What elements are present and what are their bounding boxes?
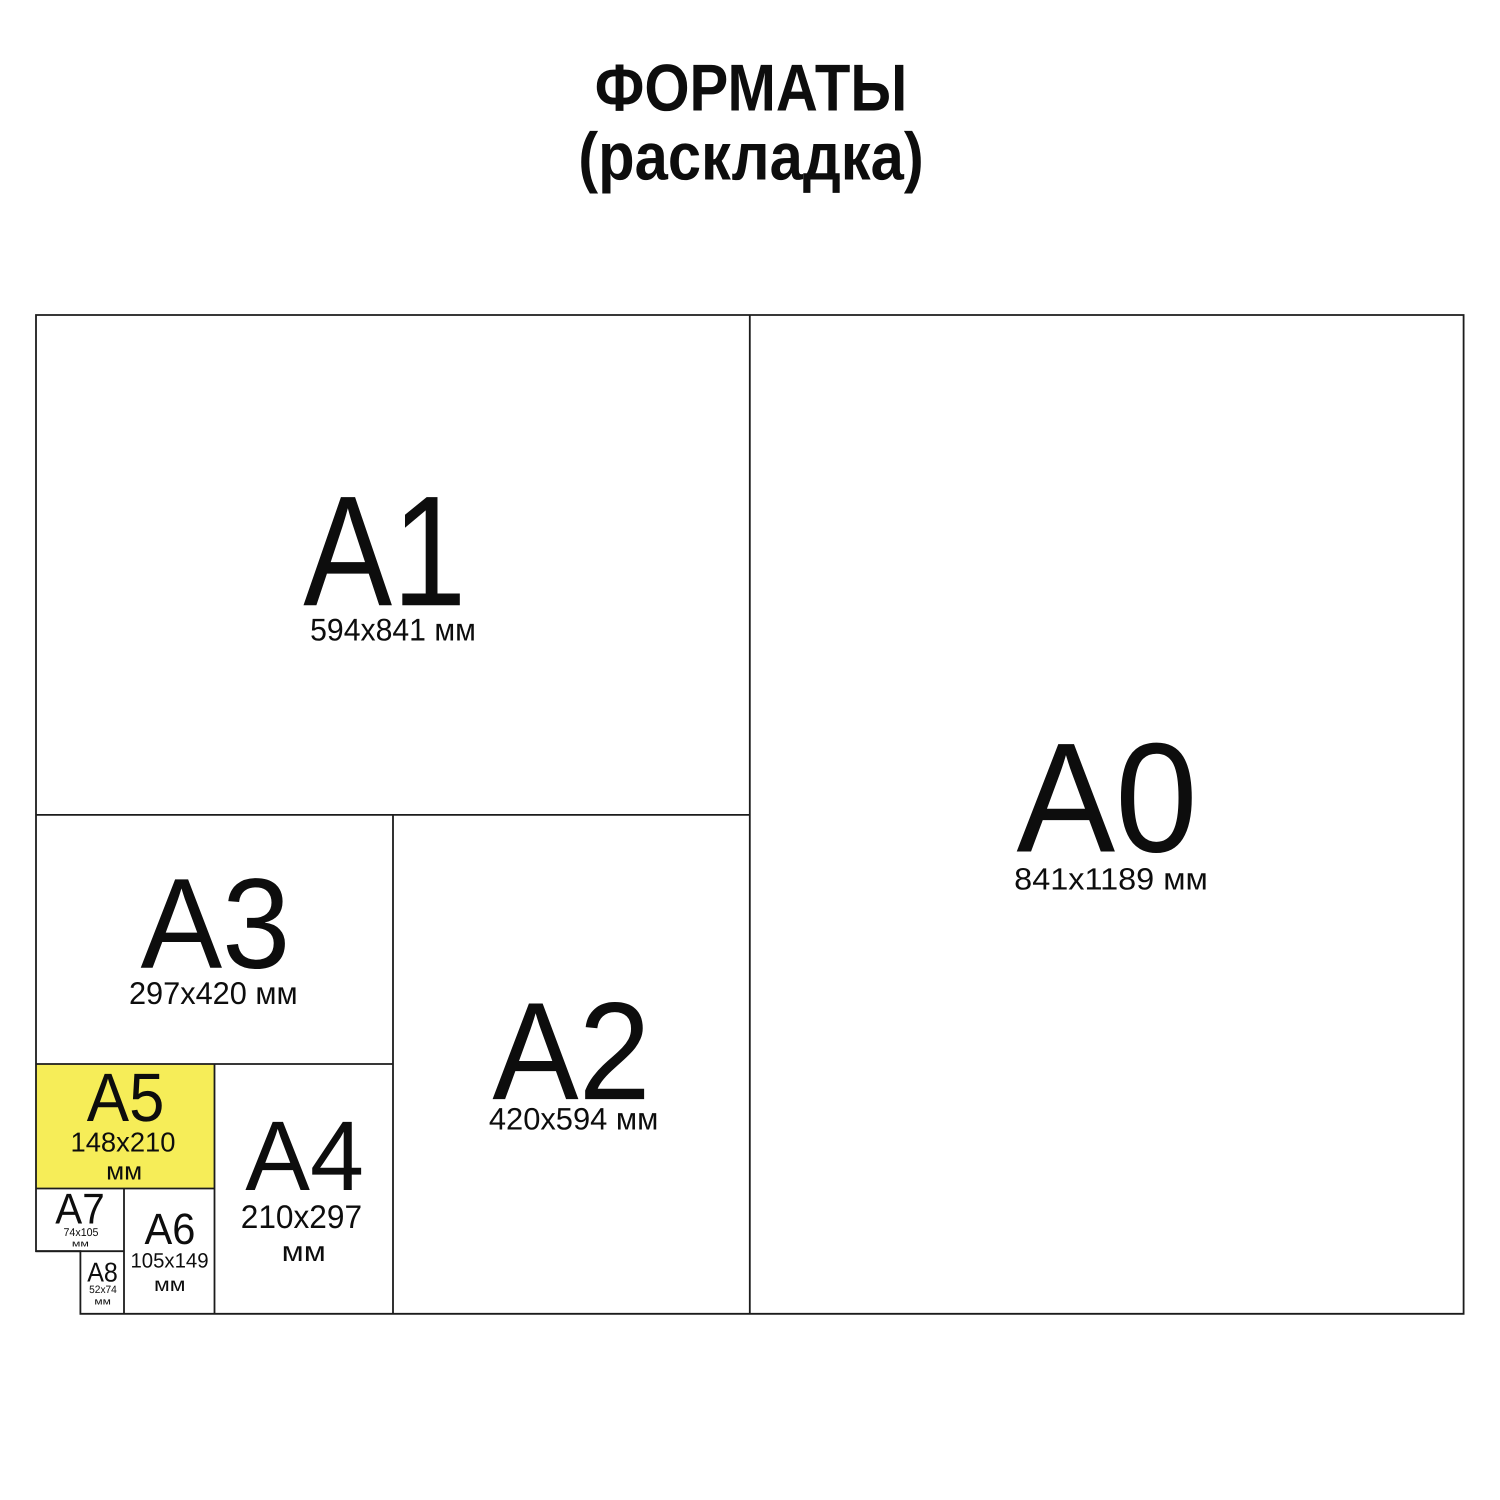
svg-text:74x105: 74x105 xyxy=(64,1227,99,1239)
svg-text:52x74: 52x74 xyxy=(89,1284,117,1296)
svg-text:мм: мм xyxy=(154,1274,186,1296)
svg-text:148x210: 148x210 xyxy=(71,1126,176,1157)
svg-text:594x841 мм: 594x841 мм xyxy=(310,612,476,647)
svg-text:мм: мм xyxy=(106,1159,142,1186)
svg-text:A4: A4 xyxy=(245,1100,364,1211)
svg-text:A5: A5 xyxy=(87,1059,165,1136)
svg-text:мм: мм xyxy=(94,1297,111,1308)
svg-text:(раскладка): (раскладка) xyxy=(578,120,924,195)
svg-text:841x1189 мм: 841x1189 мм xyxy=(1014,862,1208,897)
svg-text:ФОРМАТЫ: ФОРМАТЫ xyxy=(595,52,908,126)
svg-text:210x297: 210x297 xyxy=(241,1198,362,1235)
svg-text:420x594 мм: 420x594 мм xyxy=(489,1101,658,1136)
svg-text:мм: мм xyxy=(282,1236,326,1267)
svg-text:A6: A6 xyxy=(145,1205,196,1254)
svg-text:105x149: 105x149 xyxy=(130,1249,208,1272)
svg-text:A0: A0 xyxy=(1016,712,1197,886)
svg-text:297x420 мм: 297x420 мм xyxy=(129,975,298,1011)
svg-text:мм: мм xyxy=(72,1239,89,1249)
svg-text:A8: A8 xyxy=(87,1257,118,1288)
